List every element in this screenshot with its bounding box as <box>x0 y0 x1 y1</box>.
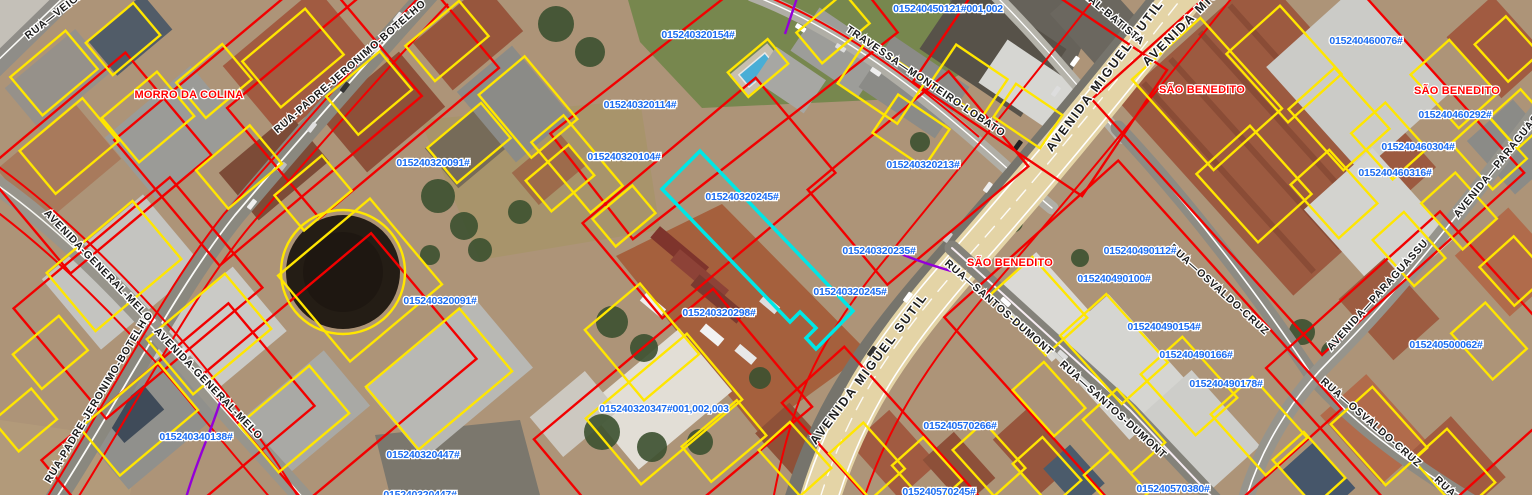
parcel-label: 015240340138# <box>159 431 233 443</box>
parcel-label: 015240320245# <box>813 286 887 298</box>
parcel-label: 015240460292# <box>1418 109 1492 121</box>
parcel-label: 015240320298# <box>682 307 756 319</box>
parcel-label: 015240320347#001,002,003 <box>599 403 729 415</box>
parcel-label: 015240320447# <box>383 489 457 495</box>
parcel-label: 015240320091# <box>396 157 470 169</box>
district-label: SÃO BENEDITO <box>967 256 1053 269</box>
parcel-label: 015240570380# <box>1136 483 1210 495</box>
parcel-label: 015240320245# <box>705 191 779 203</box>
parcel-label: 015240320235# <box>842 245 916 257</box>
parcel-label: 015240500062# <box>1409 339 1483 351</box>
parcel-label: 015240320091# <box>403 295 477 307</box>
parcel-label: 015240320213# <box>886 159 960 171</box>
district-label: SÃO BENEDITO <box>1159 83 1245 96</box>
district-label: SÃO BENEDITO <box>1414 84 1500 97</box>
parcel-label: 015240570266# <box>923 420 997 432</box>
parcel-label: 015240570245# <box>902 486 976 495</box>
parcel-label: 015240490178# <box>1189 378 1263 390</box>
district-label: MORRO DA COLINA <box>135 89 244 101</box>
parcel-label: 015240320447# <box>386 449 460 461</box>
parcel-label: 015240320114# <box>604 99 677 111</box>
parcel-label: 015240460316# <box>1358 167 1432 179</box>
map-canvas[interactable]: RUA—VEIGA RUA-PADRE-JERONIMO-BOTELHO RUA… <box>0 0 1532 495</box>
parcel-label: 015240320104# <box>587 151 661 163</box>
parcel-label: 015240490100# <box>1077 273 1151 285</box>
parcel-label: 015240320154# <box>661 29 735 41</box>
parcel-label: 015240460076# <box>1329 35 1403 47</box>
parcel-label: 015240490166# <box>1159 349 1233 361</box>
parcel-label: 015240460304# <box>1381 141 1455 153</box>
parcel-label: 015240450121#001,002 <box>893 3 1003 15</box>
parcel-label: 015240490154# <box>1127 321 1201 333</box>
parcel-label: 015240490112# <box>1104 245 1177 257</box>
map-viewport[interactable]: RUA—VEIGA RUA-PADRE-JERONIMO-BOTELHO RUA… <box>0 0 1532 495</box>
